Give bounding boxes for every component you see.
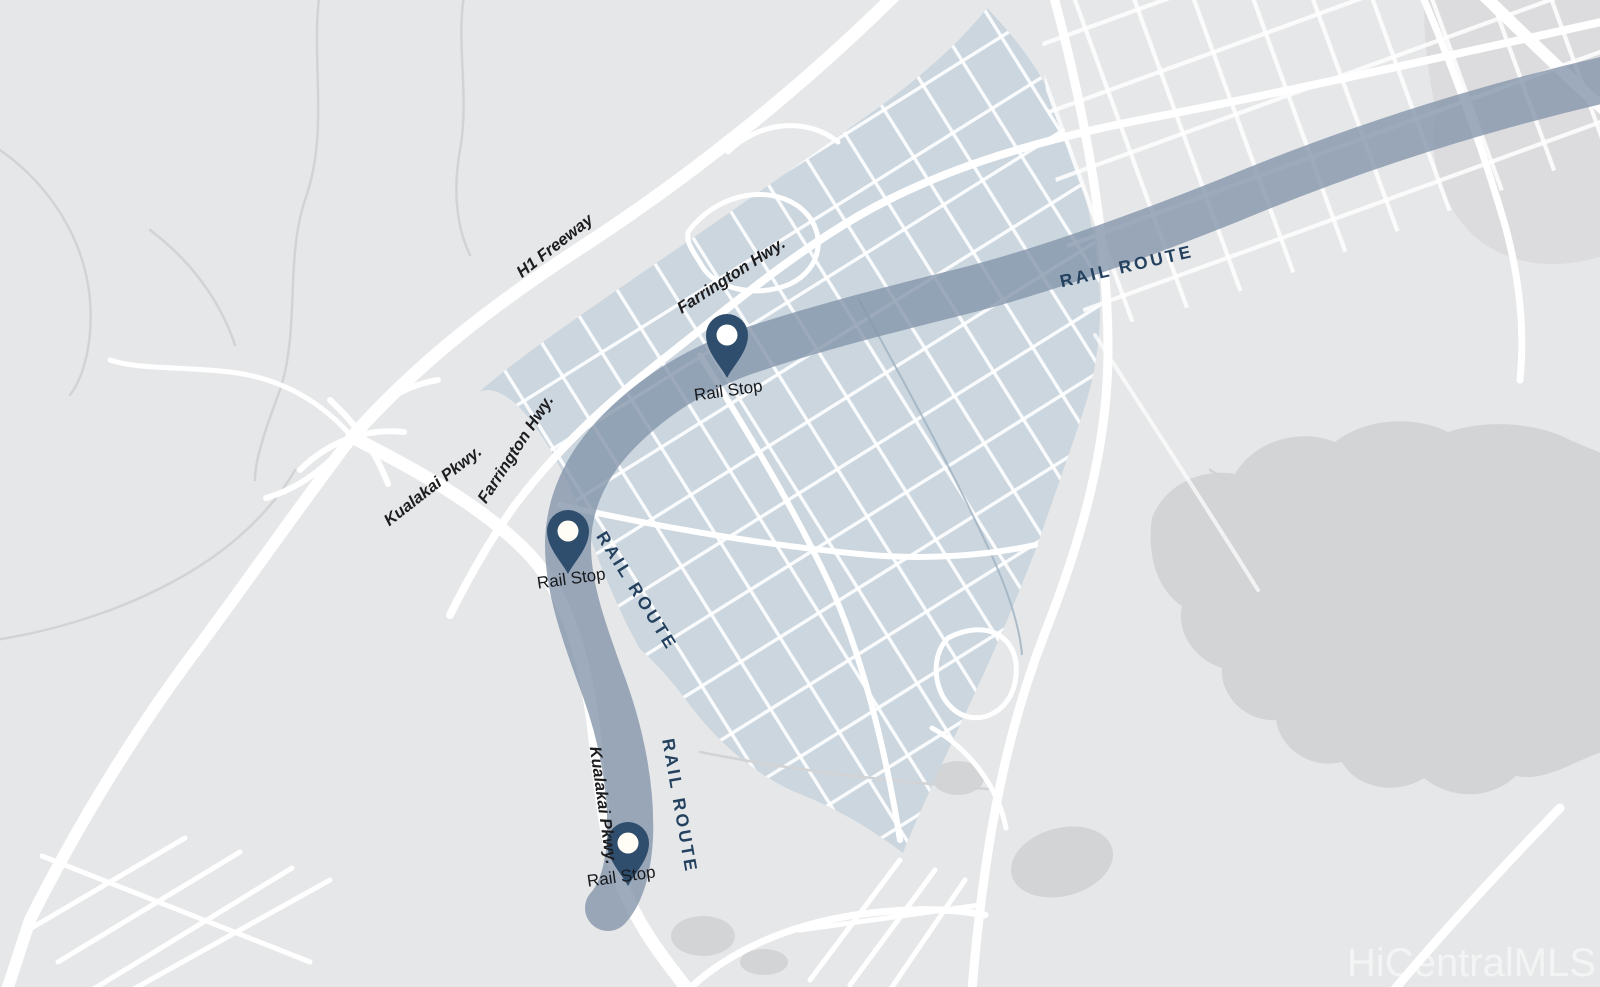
watermark: HiCentralMLS	[1347, 941, 1596, 985]
pin-dot	[558, 521, 579, 542]
map-canvas: H1 Freeway Farrington Hwy. Farrington Hw…	[0, 0, 1600, 987]
terrain-island	[671, 916, 735, 956]
map-image: H1 Freeway Farrington Hwy. Farrington Hw…	[0, 0, 1600, 987]
pin-dot	[717, 325, 738, 346]
terrain-island	[740, 949, 788, 975]
pin-dot	[618, 833, 639, 854]
